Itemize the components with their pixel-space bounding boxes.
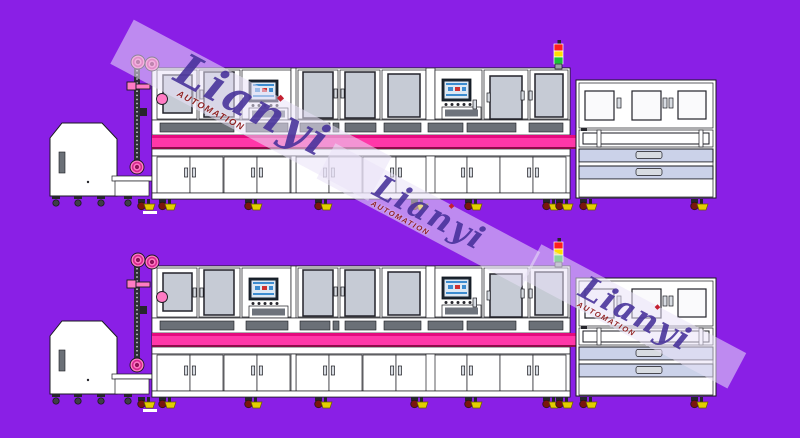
drawing-canvas: Lianyi AUTOMATION Lianyi AUTOMATION Lian… xyxy=(0,0,800,438)
machine-drawing xyxy=(0,0,800,438)
machine-line-bottom xyxy=(50,238,716,412)
machine-line-top xyxy=(50,40,716,214)
